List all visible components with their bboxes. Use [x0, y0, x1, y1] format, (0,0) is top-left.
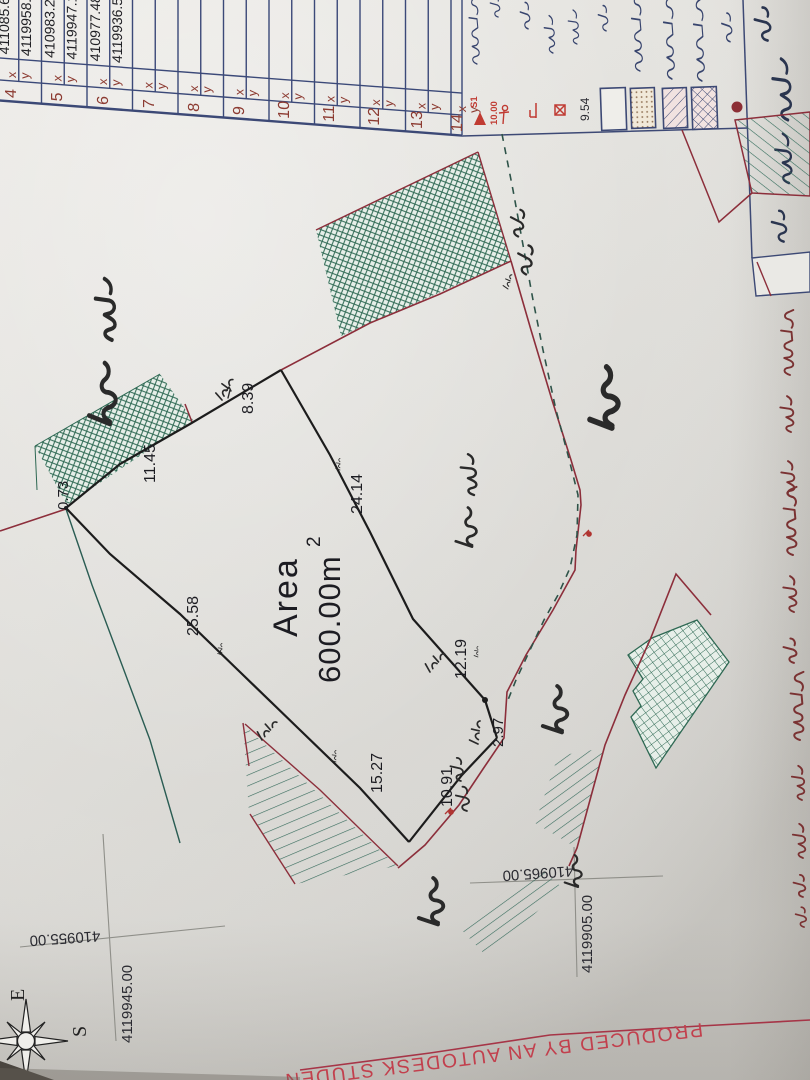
- svg-text:8.39: 8.39: [240, 383, 257, 414]
- svg-text:410983.25: 410983.25: [41, 0, 57, 58]
- svg-text:4119947.1: 4119947.1: [63, 0, 79, 60]
- svg-text:12.19: 12.19: [453, 639, 470, 679]
- svg-text:10: 10: [275, 100, 293, 119]
- svg-text:4: 4: [2, 88, 20, 98]
- svg-text:6: 6: [94, 95, 112, 105]
- svg-text:5: 5: [48, 92, 66, 102]
- svg-text:9.54: 9.54: [578, 97, 592, 121]
- svg-text:Area: Area: [267, 557, 305, 637]
- svg-text:4119958.0: 4119958.0: [18, 0, 34, 57]
- svg-text:411085.61: 411085.61: [0, 0, 12, 55]
- svg-text:E: E: [7, 989, 29, 1001]
- svg-text:4119945.00: 4119945.00: [119, 965, 136, 1043]
- svg-text:11.45: 11.45: [142, 444, 159, 483]
- svg-text:4119936.5: 4119936.5: [109, 0, 125, 63]
- svg-text:S1: S1: [469, 96, 480, 108]
- svg-text:2: 2: [304, 536, 325, 547]
- svg-text:8: 8: [185, 102, 203, 112]
- svg-text:13: 13: [408, 110, 426, 129]
- svg-text:15.27: 15.27: [369, 753, 386, 793]
- svg-text:14: 14: [448, 113, 466, 132]
- svg-text:24.14: 24.14: [349, 474, 366, 514]
- svg-text:11: 11: [320, 105, 338, 123]
- svg-text:4119905.00: 4119905.00: [579, 895, 596, 973]
- svg-text:10.91: 10.91: [439, 767, 456, 807]
- svg-text:9: 9: [230, 105, 248, 115]
- svg-text:410977.48: 410977.48: [87, 0, 103, 62]
- svg-text:7: 7: [140, 99, 158, 109]
- svg-text:25.58: 25.58: [185, 596, 202, 636]
- svg-text:0.73: 0.73: [55, 481, 72, 510]
- svg-text:2.97: 2.97: [490, 718, 507, 747]
- svg-text:12: 12: [365, 107, 383, 126]
- svg-text:S: S: [69, 1026, 91, 1037]
- svg-text:10.00: 10.00: [489, 101, 500, 125]
- svg-text:600.00m: 600.00m: [312, 555, 347, 683]
